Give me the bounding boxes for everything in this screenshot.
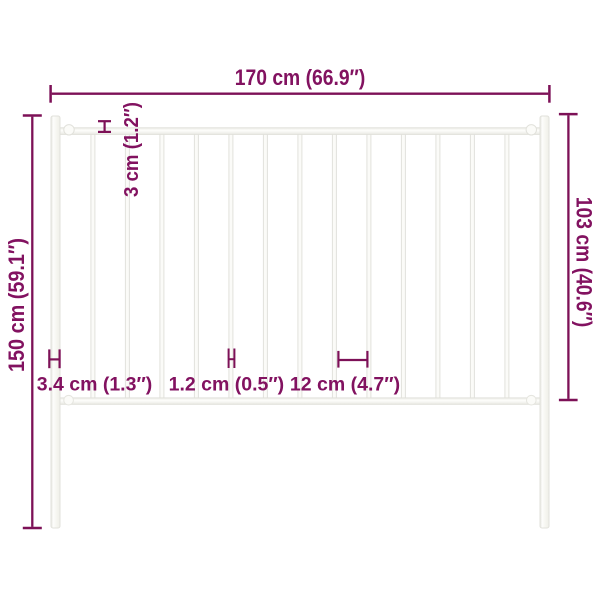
svg-text:3.4 cm (1.3″): 3.4 cm (1.3″) [37, 373, 153, 395]
svg-text:150 cm (59.1″): 150 cm (59.1″) [4, 238, 29, 372]
svg-text:12 cm (4.7″): 12 cm (4.7″) [290, 373, 400, 395]
svg-text:1.2 cm (0.5″): 1.2 cm (0.5″) [169, 373, 285, 395]
svg-text:3 cm (1.2″): 3 cm (1.2″) [121, 102, 143, 197]
svg-text:170 cm (66.9″): 170 cm (66.9″) [235, 65, 366, 90]
svg-text:103 cm (40.6″): 103 cm (40.6″) [572, 197, 597, 328]
